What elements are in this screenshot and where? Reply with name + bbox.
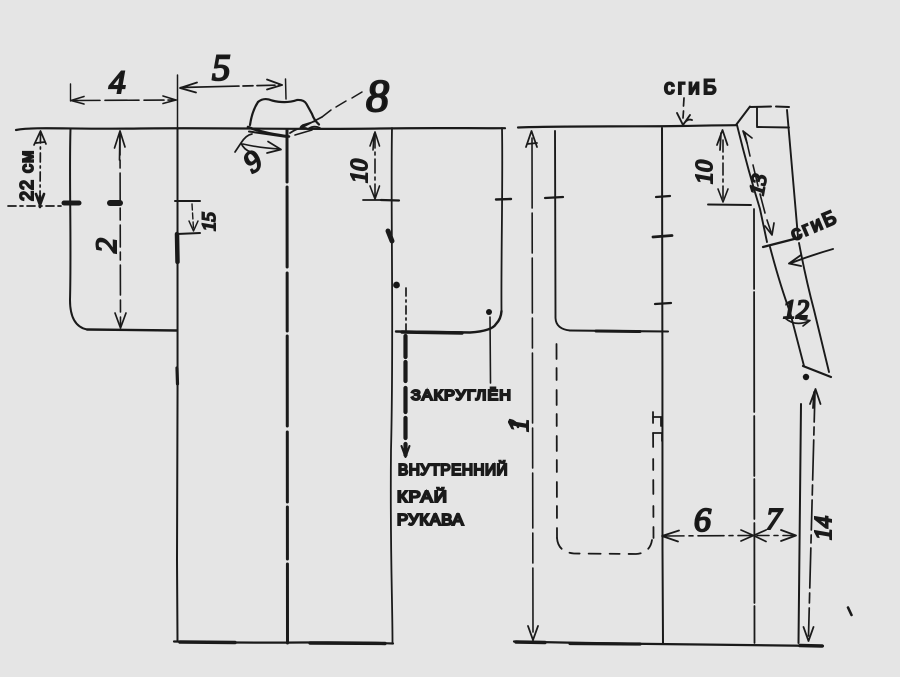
svg-text:7: 7 [766,501,783,536]
svg-text:13: 13 [744,172,771,197]
svg-text:10: 10 [347,159,373,183]
svg-text:РУКАВА: РУКАВА [397,512,464,529]
svg-text:ВНУТРЕННИЙ: ВНУТРЕННИЙ [398,461,508,479]
svg-text:22 см: 22 см [17,150,37,201]
svg-text:10: 10 [692,160,718,184]
svg-text:2: 2 [90,238,123,253]
svg-text:8: 8 [366,70,389,121]
svg-text:ЗАКРУГЛЁН: ЗАКРУГЛЁН [411,387,512,404]
svg-text:5: 5 [212,48,231,89]
svg-text:6: 6 [694,502,711,539]
svg-text:КРАЙ: КРАЙ [397,488,448,506]
svg-text:1: 1 [504,418,535,432]
svg-text:15: 15 [199,212,220,231]
svg-text:14: 14 [811,516,837,540]
svg-text:сгиБ: сгиБ [664,76,720,99]
svg-text:4: 4 [109,65,126,101]
